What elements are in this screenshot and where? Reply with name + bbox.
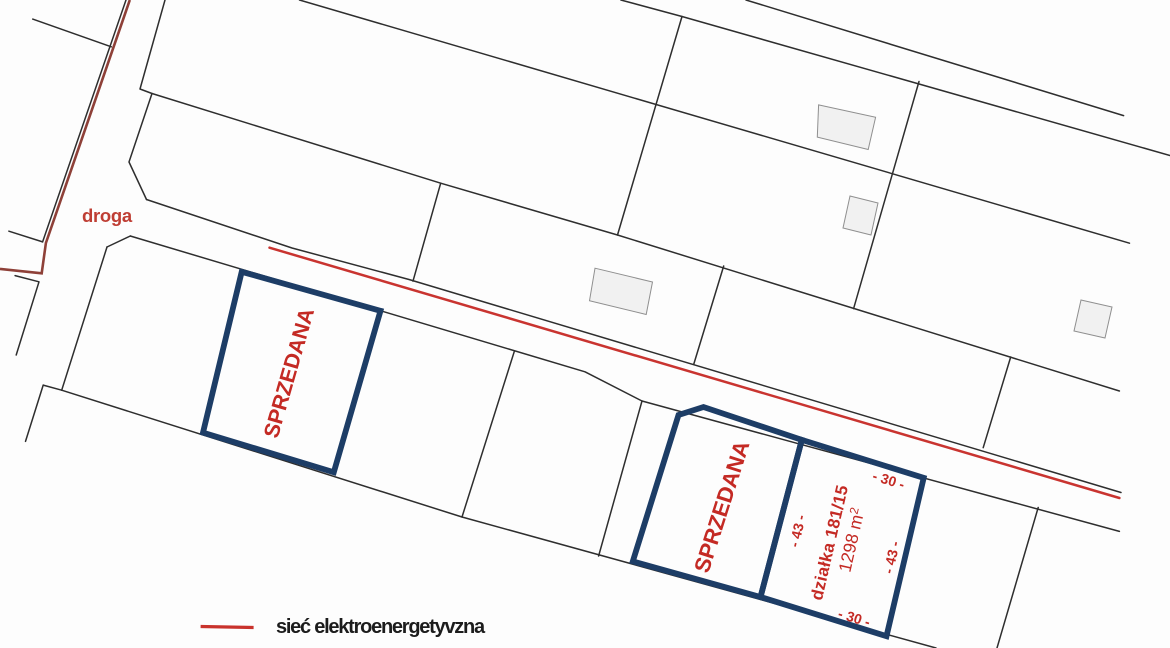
svg-text:droga: droga (82, 205, 133, 226)
svg-text:sieć elektroenergetyvzna: sieć elektroenergetyvzna (276, 616, 486, 638)
svg-text:SPRZEDANA: SPRZEDANA (689, 438, 754, 576)
svg-text:SPRZEDANA: SPRZEDANA (259, 305, 319, 440)
svg-text:- 43 -: - 43 - (786, 513, 809, 549)
